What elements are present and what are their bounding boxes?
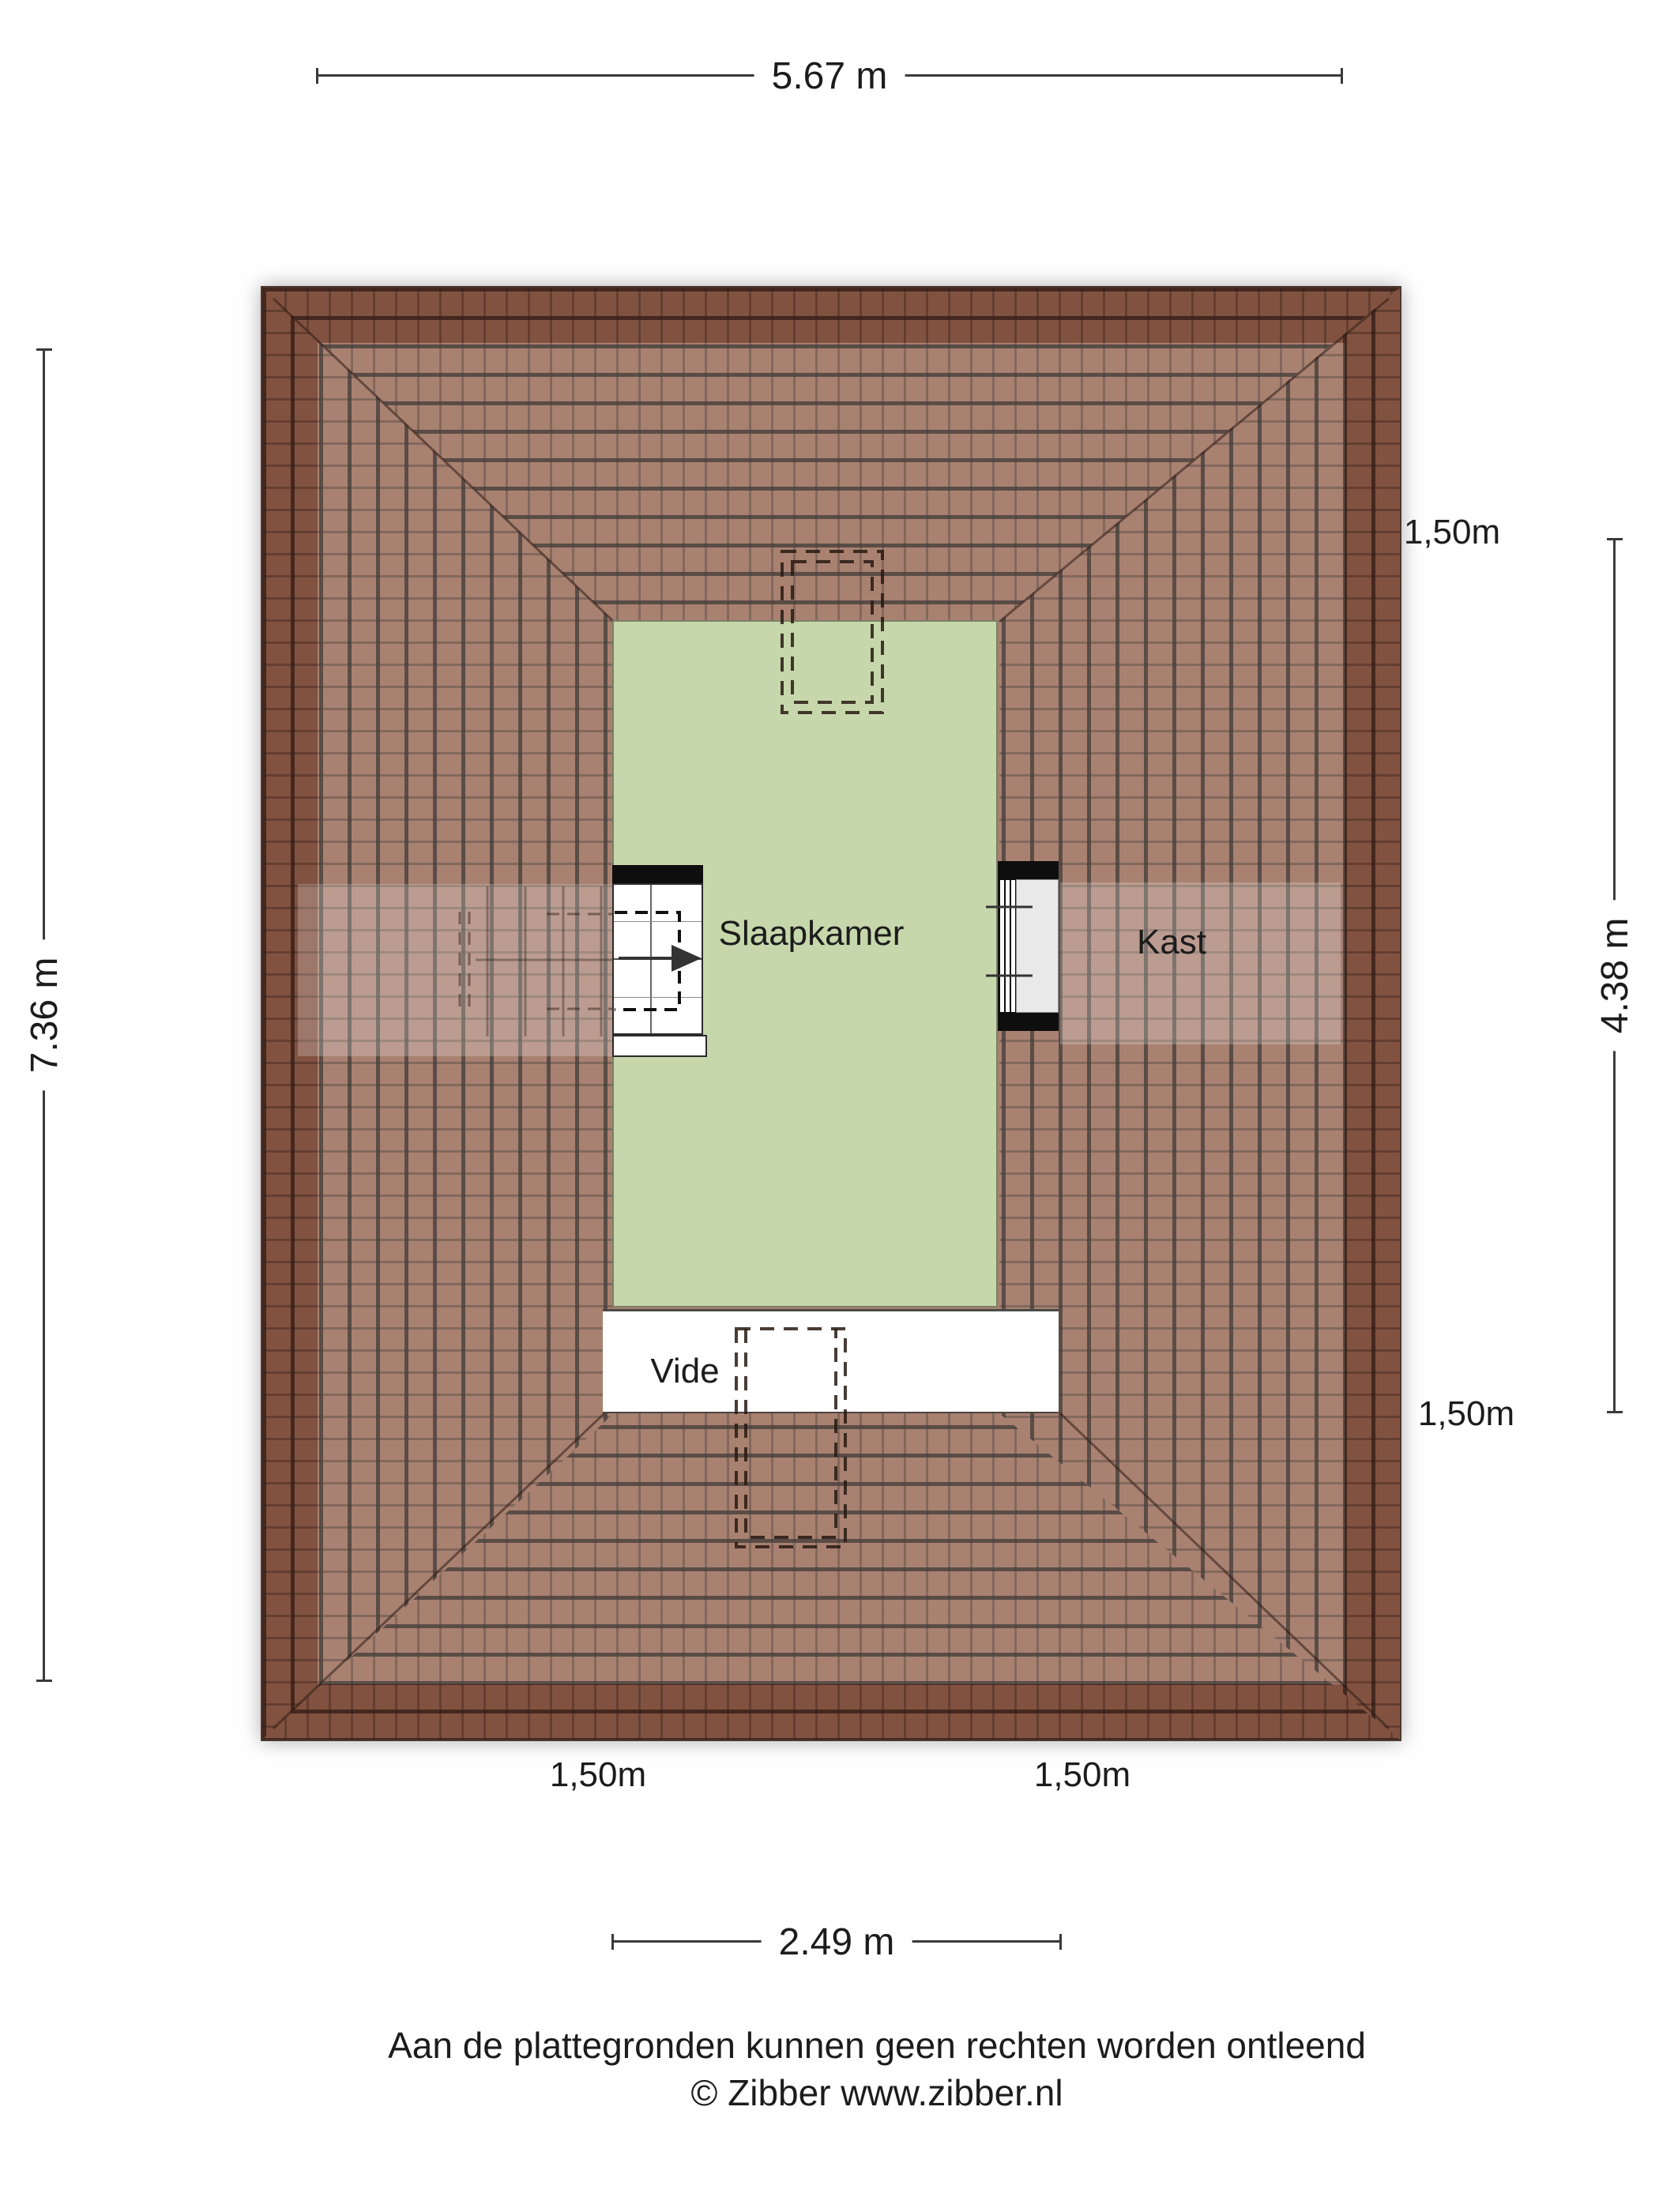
stair-landing xyxy=(612,1035,707,1057)
footer-disclaimer: Aan de plattegronden kunnen geen rechten… xyxy=(388,2027,1366,2063)
dimension-left-label: 7.36 m xyxy=(26,940,64,1091)
stair-tread-line xyxy=(614,997,702,998)
window-wall-stub-bottom xyxy=(998,1013,1059,1031)
footer-credit: © Zibber www.zibber.nl xyxy=(690,2075,1063,2111)
dimension-top-label: 5.67 m xyxy=(754,58,905,96)
label-kast: Kast xyxy=(1137,925,1206,960)
label-slaapkamer: Slaapkamer xyxy=(719,916,905,951)
height-label-right-top: 1,50m xyxy=(1404,515,1500,550)
closet-window-frame xyxy=(998,879,1016,1013)
height-label-bottom-left: 1,50m xyxy=(550,1758,646,1793)
stair-mid-line xyxy=(614,958,702,960)
dimension-left: 7.36 m xyxy=(43,349,45,1681)
dimension-bottom-label: 2.49 m xyxy=(762,1924,912,1962)
stair-wall-stub xyxy=(612,865,703,883)
dimension-right: 4.38 m xyxy=(1613,539,1616,1413)
floorplan-page: 5.67 m 7.36 m 4.38 m 2.49 m 1,50m 1,50m … xyxy=(0,0,1659,2212)
dimension-bottom: 2.49 m xyxy=(612,1940,1061,1943)
staircase xyxy=(612,883,703,1035)
label-vide: Vide xyxy=(650,1354,719,1389)
dimension-top: 5.67 m xyxy=(317,74,1342,77)
height-label-bottom-right: 1,50m xyxy=(1034,1758,1130,1793)
dimension-right-label: 4.38 m xyxy=(1597,901,1635,1051)
floor-band-stairs xyxy=(298,884,614,1056)
stair-tread-line xyxy=(614,921,702,922)
closet-window-panel xyxy=(1016,879,1059,1013)
wall-strip-below-bedroom xyxy=(603,1309,1059,1334)
floor-band-closet xyxy=(1060,882,1341,1044)
height-label-right-bottom: 1,50m xyxy=(1418,1397,1514,1431)
window-wall-stub-top xyxy=(998,861,1059,879)
